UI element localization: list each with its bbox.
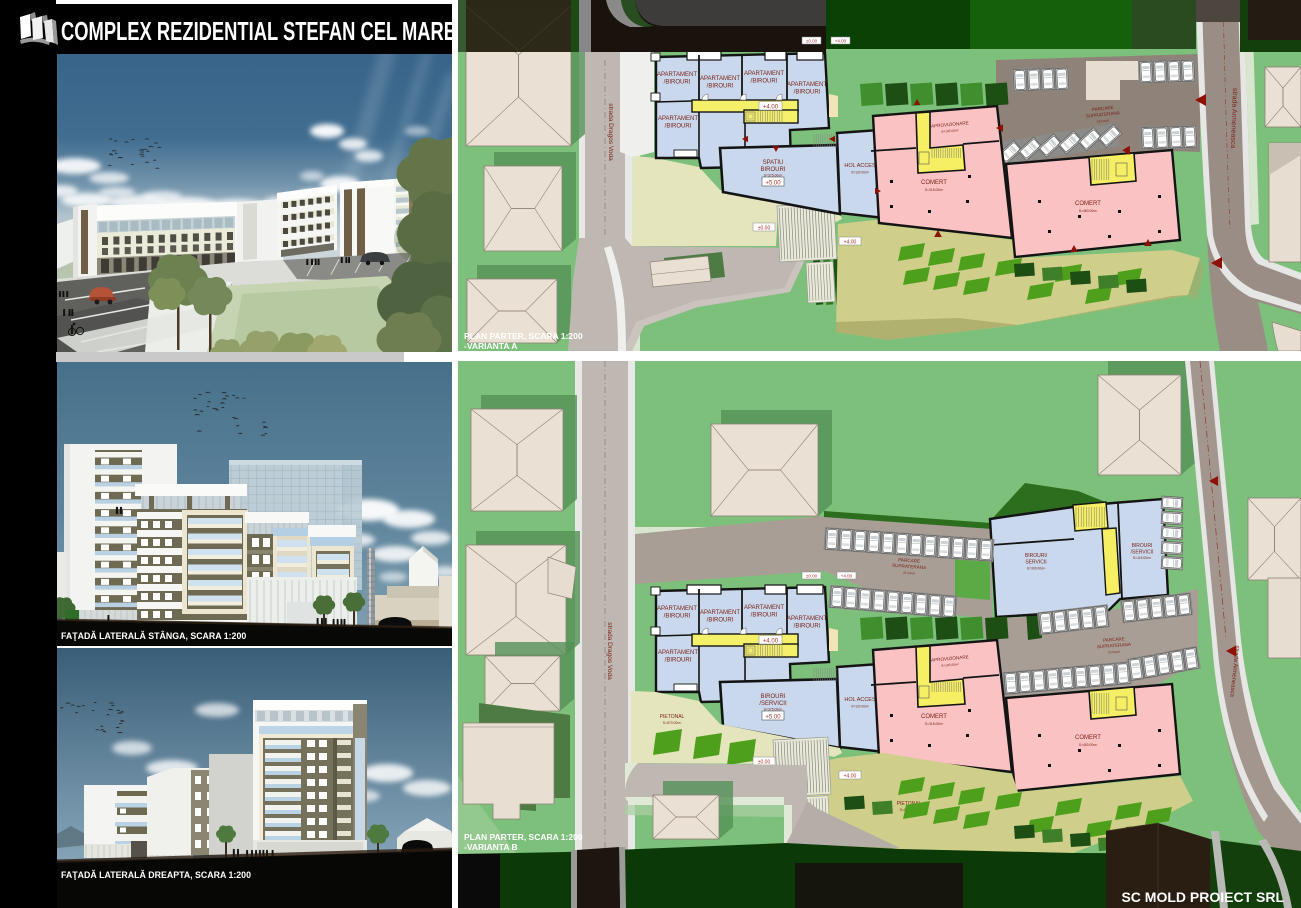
svg-text:FAŢADĂ LATERALĂ DREAPTA, SCAR: FAŢADĂ LATERALĂ DREAPTA, SCARA 1:200: [61, 870, 251, 880]
svg-text:+4.00: +4.00: [763, 639, 779, 645]
svg-text:APARTAMENT: APARTAMENT: [657, 72, 697, 78]
svg-text:BIROURI: BIROURI: [760, 694, 785, 700]
svg-text:+4.00: +4.00: [763, 105, 779, 111]
svg-text:APARTAMENT: APARTAMENT: [744, 71, 784, 77]
svg-text:S=315.00m²: S=315.00m²: [925, 722, 944, 726]
svg-text:S=115.00m²: S=115.00m²: [1133, 556, 1152, 560]
svg-text:/SERVICII: /SERVICII: [1131, 550, 1154, 556]
svg-text:S=120.00m²: S=120.00m²: [851, 705, 868, 709]
svg-text:-VARIANTA A: -VARIANTA A: [464, 341, 517, 351]
svg-text:+4.00: +4.00: [844, 774, 857, 780]
svg-text:HOL ACCES: HOL ACCES: [844, 163, 876, 169]
svg-text:APARTAMENT: APARTAMENT: [700, 610, 740, 616]
svg-text:APARTAMENT: APARTAMENT: [787, 616, 827, 622]
svg-text:S=460.00m²: S=460.00m²: [1079, 209, 1098, 213]
svg-text:/SERVICII: /SERVICII: [759, 701, 787, 707]
svg-text:strada Dragos Voda: strada Dragos Voda: [606, 622, 613, 680]
svg-text:SC MOLD PROIECT SRL: SC MOLD PROIECT SRL: [1121, 889, 1284, 905]
svg-text:BIROURI: BIROURI: [1132, 543, 1153, 549]
svg-text:/BIROURI: /BIROURI: [664, 80, 691, 86]
svg-text:±0.00: ±0.00: [806, 574, 818, 579]
svg-text:BIROURI: BIROURI: [760, 167, 785, 173]
svg-text:±0.00: ±0.00: [758, 226, 771, 232]
svg-text:BIROURI/: BIROURI/: [1025, 553, 1048, 559]
svg-text:/BIROURI: /BIROURI: [707, 618, 734, 624]
svg-text:/BIROURI: /BIROURI: [664, 614, 691, 620]
svg-text:APARTAMENT: APARTAMENT: [658, 116, 698, 122]
svg-text:APARTAMENT: APARTAMENT: [658, 650, 698, 656]
svg-text:-VARIANTA B: -VARIANTA B: [464, 842, 518, 852]
svg-text:COMERT: COMERT: [921, 180, 947, 186]
svg-text:FAŢADĂ LATERALĂ STÂNGA, SCARA: FAŢADĂ LATERALĂ STÂNGA, SCARA 1:200: [61, 630, 246, 641]
svg-text:PLAN PARTER, SCARA 1:200: PLAN PARTER, SCARA 1:200: [464, 832, 583, 842]
svg-text:/BIROURI: /BIROURI: [751, 613, 778, 619]
svg-text:/BIROURI: /BIROURI: [794, 90, 821, 96]
svg-text:+5.00: +5.00: [765, 181, 781, 187]
svg-text:SPATIU: SPATIU: [763, 160, 784, 166]
svg-text:APARTAMENT: APARTAMENT: [787, 82, 827, 88]
svg-text:+5.00: +5.00: [765, 715, 781, 721]
svg-text:SERVICII: SERVICII: [1025, 560, 1046, 566]
svg-text:APARTAMENT: APARTAMENT: [744, 605, 784, 611]
svg-text:S=315.00m²: S=315.00m²: [925, 188, 944, 192]
svg-text:S=460.00m²: S=460.00m²: [1079, 743, 1098, 747]
svg-text:COMPLEX REZIDENTIAL STEFAN CEL: COMPLEX REZIDENTIAL STEFAN CEL MARE: [61, 16, 456, 46]
svg-text:/BIROURI: /BIROURI: [751, 79, 778, 85]
svg-text:/BIROURI: /BIROURI: [665, 658, 692, 664]
svg-text:+4.00: +4.00: [841, 574, 853, 579]
svg-text:S=300.00m²: S=300.00m²: [1027, 567, 1046, 571]
svg-text:/BIROURI: /BIROURI: [665, 124, 692, 130]
svg-text:+4.00: +4.00: [835, 39, 847, 44]
svg-text:HOL ACCES: HOL ACCES: [844, 697, 876, 703]
svg-text:COMERT: COMERT: [1075, 735, 1101, 741]
svg-text:/BIROURI: /BIROURI: [707, 84, 734, 90]
svg-text:APARTAMENT: APARTAMENT: [657, 606, 697, 612]
svg-text:±0.00: ±0.00: [806, 39, 818, 44]
svg-text:S=120.00m²: S=120.00m²: [851, 171, 868, 175]
svg-text:S=570.00m²: S=570.00m²: [663, 721, 682, 725]
svg-text:COMERT: COMERT: [1075, 201, 1101, 207]
svg-text:APARTAMENT: APARTAMENT: [700, 76, 740, 82]
svg-text:+4.00: +4.00: [844, 240, 857, 246]
svg-text:PIETONAL: PIETONAL: [660, 714, 685, 720]
svg-text:strada Dragos Voda: strada Dragos Voda: [607, 103, 614, 161]
svg-text:COMERT: COMERT: [921, 714, 947, 720]
svg-text:PLAN PARTER, SCARA 1:200: PLAN PARTER, SCARA 1:200: [464, 331, 583, 341]
svg-text:/BIROURI: /BIROURI: [794, 624, 821, 630]
